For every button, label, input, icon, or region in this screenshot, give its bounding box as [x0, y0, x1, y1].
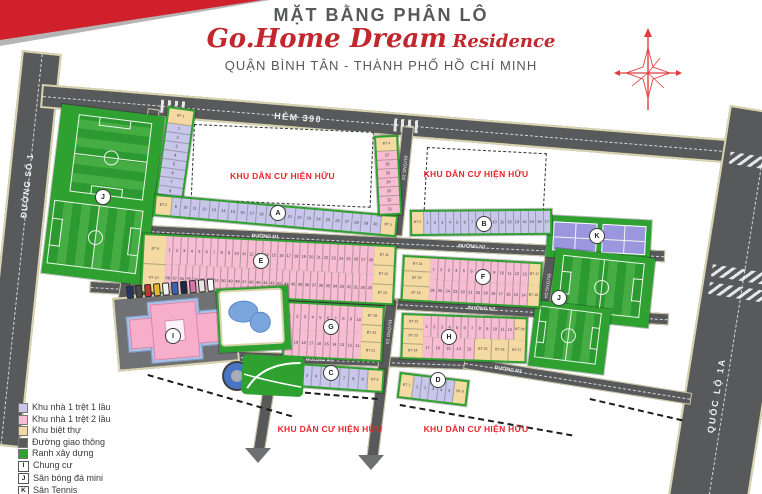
- lot-bt-21: BT 21: [360, 342, 381, 360]
- car: [197, 279, 206, 293]
- lot-bt-11: BT 11: [374, 246, 395, 266]
- lot-strip: 20191817161514131211: [284, 329, 361, 359]
- legend-item: KSân Tennis: [18, 486, 111, 494]
- legend-label: Chung cư: [33, 461, 73, 471]
- legend-label: Khu biệt thự: [32, 426, 81, 436]
- legend-item: IChung cư: [18, 461, 111, 472]
- legend-item: Khu nhà 1 trệt 1 lầu: [18, 403, 111, 413]
- soccer-field: [534, 306, 602, 365]
- badge-block-d: D: [430, 372, 446, 388]
- lot-strip: 1716151413BT 25BT 26BT 27: [422, 337, 525, 362]
- tennis-court: [601, 224, 646, 255]
- lot-bt-6: BT 6: [367, 370, 383, 391]
- lot-bt-2: BT 2: [155, 196, 172, 215]
- field-box: [536, 320, 546, 343]
- legend-letter-box: J: [18, 473, 29, 484]
- badge-block-h: H: [441, 329, 457, 345]
- badge-tennis-k: K: [589, 228, 605, 244]
- plan-title: MẶT BẰNG PHÂN LÔ: [0, 5, 762, 26]
- badge-block-a: A: [270, 205, 286, 221]
- road-exit-west: [253, 393, 274, 452]
- legend-swatch: [18, 438, 28, 448]
- car: [162, 282, 171, 296]
- legend-swatch: [18, 415, 28, 425]
- swimming-pool: [249, 311, 271, 333]
- park: [241, 354, 305, 397]
- car: [135, 285, 144, 299]
- crosswalk: [708, 282, 762, 304]
- exit-arrow: [358, 455, 384, 470]
- lot-bt-22: BT 22: [403, 315, 423, 330]
- badge-block-b: B: [476, 216, 492, 232]
- legend-item: Khu nhà 1 trệt 2 lầu: [18, 415, 111, 425]
- field-circle: [103, 150, 120, 167]
- lot-bt-9: BT 9: [144, 235, 167, 265]
- lot-bt-23: BT 23: [403, 329, 423, 344]
- lot-bt-18: BT 18: [527, 285, 539, 307]
- legend-label: Sân bóng đá mini: [33, 474, 103, 484]
- field-box: [631, 278, 643, 302]
- lot-strip: BT 22BT 23BT 24: [402, 315, 423, 358]
- car: [206, 278, 215, 292]
- road-label-n2b: ĐƯỜNG N2: [468, 306, 496, 313]
- badge-block-c: C: [323, 365, 339, 381]
- legend-label: Ranh xây dựng: [32, 449, 94, 459]
- lot-bt-19: BT 19: [362, 307, 383, 326]
- legend: Khu nhà 1 trệt 1 lầu Khu nhà 1 trệt 2 lầ…: [18, 403, 111, 494]
- car: [144, 284, 153, 298]
- soccer-field: [69, 114, 152, 200]
- lot-strip: BT 14BT 15BT 16: [403, 257, 431, 300]
- legend-item: Đường giao thông: [18, 438, 111, 448]
- road-quoc-lo-1a: QUỐC LỘ 1A: [664, 105, 762, 494]
- block-f: BT 14BT 15BT 16 12345678910111213BT 17 2…: [401, 255, 543, 308]
- existing-area-northwest: [191, 124, 374, 208]
- legend-swatch: [18, 426, 28, 436]
- legend-item: Khu biệt thự: [18, 426, 111, 436]
- lot-13: 13: [464, 338, 475, 359]
- lot-strip: BT 437363534333231: [376, 137, 400, 214]
- legend-label: Khu nhà 1 trệt 2 lầu: [32, 415, 111, 425]
- project-name-main: Go.Home Dream: [207, 24, 447, 54]
- existing-residential-label: KHU DÂN CƯ HIỆN HỮU: [396, 424, 556, 434]
- lot-17: 17: [422, 337, 433, 358]
- field-circle: [593, 279, 609, 295]
- road-label-quoc-lo-1a: QUỐC LỘ 1A: [707, 324, 733, 434]
- block-h: BT 22BT 23BT 24 123456789101112BT 28 171…: [400, 313, 528, 363]
- car: [180, 281, 189, 295]
- pool-zone: [216, 285, 291, 353]
- lot-bt-4: BT 4: [376, 137, 397, 153]
- pool-deck: [218, 288, 285, 347]
- compass-icon: [612, 26, 684, 116]
- lot-bt-13: BT 13: [372, 284, 393, 303]
- legend-item: JSân bóng đá mini: [18, 473, 111, 484]
- road-label-d3: ĐƯỜNG D3: [384, 319, 391, 344]
- park-paths: [241, 354, 305, 397]
- car: [126, 285, 135, 299]
- badge-apartment-i: I: [165, 328, 181, 344]
- lot-bt-5: BT 5: [412, 212, 424, 234]
- road-label-hem-390: HẺM 390: [274, 112, 323, 125]
- legend-item: Ranh xây dựng: [18, 449, 111, 459]
- lot-bt-15: BT 15: [403, 271, 430, 287]
- legend-letter-box: I: [18, 461, 29, 472]
- lot-bt-20: BT 20: [361, 325, 382, 344]
- lot-bt-24: BT 24: [402, 344, 422, 358]
- lot-31: 31: [380, 205, 400, 214]
- lot-strip: BT 11BT 12BT 13: [372, 246, 395, 303]
- road-label-n1b: ĐƯỜNG N1: [458, 244, 486, 250]
- road-label-duong-so-1: ĐƯỜNG SỐ 1: [19, 108, 39, 218]
- field-box: [590, 327, 600, 350]
- existing-residential-label: KHU DÂN CƯ HIỆN HỮU: [400, 169, 552, 179]
- road-label-n3b: ĐƯỜNG N3: [494, 366, 522, 375]
- crosswalk: [729, 152, 762, 174]
- badge-block-e: E: [253, 253, 269, 269]
- exit-arrow: [245, 448, 271, 463]
- badge-soccer-j-east: J: [551, 290, 567, 306]
- lot-bt-17: BT 17: [528, 264, 540, 286]
- road-centerline: [704, 113, 762, 494]
- existing-residential-label: KHU DÂN CƯ HIỆN HỮU: [250, 424, 410, 434]
- badge-soccer-j-west: J: [95, 189, 111, 205]
- lot-bt-14: BT 14: [404, 257, 431, 273]
- legend-letter-box: K: [18, 486, 29, 494]
- lot-bt-27: BT 27: [508, 340, 525, 362]
- existing-residential-label: KHU DÂN CƯ HIỆN HỮU: [200, 171, 365, 181]
- lot-bt-12: BT 12: [373, 265, 394, 285]
- car: [153, 283, 162, 297]
- field-box: [127, 228, 141, 256]
- car: [171, 281, 180, 295]
- lot-bt-25: BT 25: [474, 339, 492, 361]
- lot-bt-26: BT 26: [491, 339, 509, 361]
- legend-swatch: [18, 403, 28, 413]
- badge-block-g: G: [323, 319, 339, 335]
- lot-bt-28: BT 28: [514, 319, 526, 340]
- legend-label: Khu nhà 1 trệt 1 lầu: [32, 403, 111, 413]
- field-box: [49, 218, 63, 246]
- lot-bt-16: BT 16: [403, 286, 430, 301]
- road-label-d4: ĐƯỜNG D4: [543, 273, 551, 298]
- field-circle: [560, 327, 577, 344]
- project-name-suffix: Residence: [452, 31, 555, 52]
- soccer-field: [46, 200, 143, 274]
- site-plan-poster: ĐƯỜNG SỐ 1 HẺM 390 QUỐC LỘ 1A ĐƯỜNG N1 Đ…: [0, 0, 762, 494]
- lot-bt-3: BT 3: [380, 216, 396, 235]
- legend-label: Sân Tennis: [33, 486, 77, 494]
- legend-label: Đường giao thông: [32, 438, 105, 448]
- mini-soccer-zone-east-b: [528, 300, 611, 375]
- lot-strip: BT 19BT 20BT 21: [360, 307, 383, 360]
- field-box: [99, 117, 132, 130]
- badge-block-f: F: [475, 269, 491, 285]
- legend-swatch: [18, 449, 28, 459]
- lot-bt-8: BT 8: [453, 381, 468, 404]
- field-circle: [87, 229, 104, 246]
- car: [188, 280, 197, 294]
- lot-17: 17: [544, 211, 551, 233]
- lot-column-bt4: BT 437363534333231: [374, 135, 402, 216]
